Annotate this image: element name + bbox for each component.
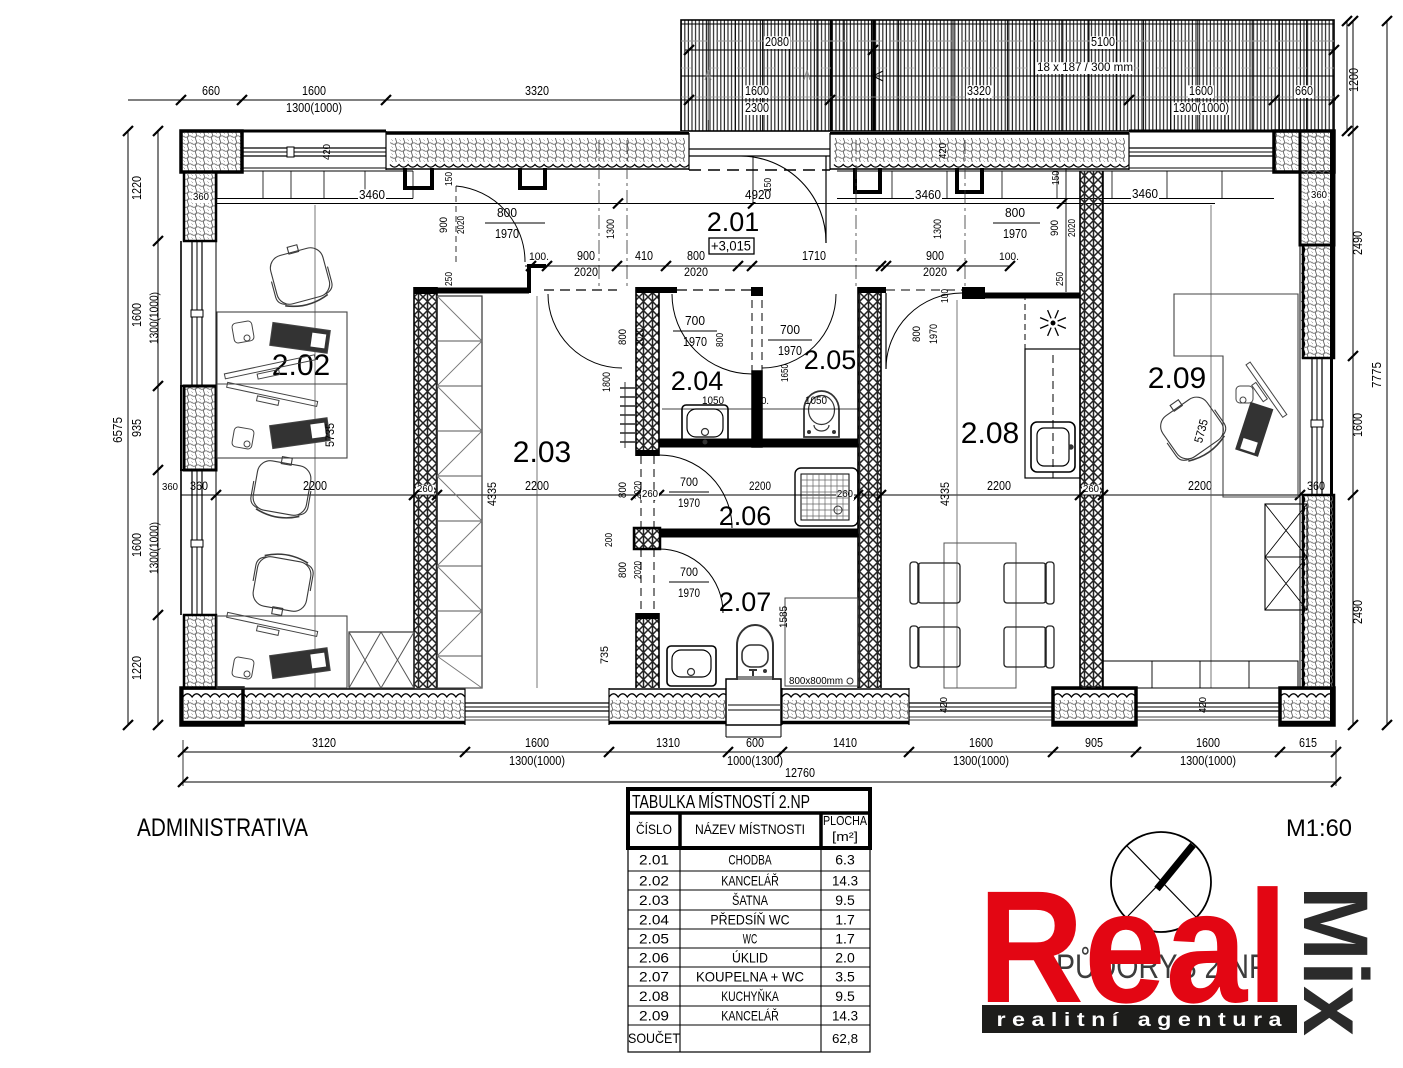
svg-text:WC: WC [743,931,757,947]
svg-text:2.05: 2.05 [804,345,857,375]
svg-text:2.06: 2.06 [639,950,669,966]
svg-text:1600: 1600 [525,735,549,750]
svg-text:NÁZEV MÍSTNOSTI: NÁZEV MÍSTNOSTI [695,821,805,837]
svg-text:150: 150 [1051,171,1062,185]
svg-text:2.02: 2.02 [639,873,669,889]
svg-text:1600: 1600 [302,83,326,98]
svg-text:5100: 5100 [1091,34,1115,49]
svg-text:2.09: 2.09 [1148,362,1206,395]
svg-text:14.3: 14.3 [832,873,858,889]
svg-text:1800: 1800 [601,372,613,392]
svg-text:1600: 1600 [129,533,144,557]
svg-text:1050: 1050 [805,395,827,407]
svg-text:1310: 1310 [656,735,680,750]
svg-text:3460: 3460 [915,187,941,202]
svg-text:1300(1000): 1300(1000) [147,522,161,574]
svg-text:360: 360 [162,482,178,493]
svg-text:700: 700 [680,565,698,579]
svg-text:2.07: 2.07 [639,969,669,985]
svg-text:700: 700 [680,475,698,489]
svg-text:900: 900 [438,217,450,233]
svg-text:2020: 2020 [1067,219,1078,237]
svg-text:PLOCHA: PLOCHA [823,813,867,828]
svg-text:1300(1000): 1300(1000) [953,753,1009,768]
svg-text:[m²]: [m²] [832,829,858,844]
svg-text:800: 800 [911,326,923,342]
svg-text:800: 800 [617,482,629,498]
svg-text:18 x 187 / 300 mm: 18 x 187 / 300 mm [1037,60,1133,74]
svg-text:660: 660 [202,83,220,98]
svg-text:1650: 1650 [780,364,791,382]
svg-text:1970: 1970 [495,226,519,241]
svg-text:1970: 1970 [928,324,940,344]
svg-text:260: 260 [417,484,433,495]
svg-text:150: 150 [763,178,774,192]
svg-text:1600: 1600 [969,735,993,750]
svg-text:KOUPELNA + WC: KOUPELNA + WC [696,969,804,985]
svg-text:1300(1000): 1300(1000) [147,292,161,344]
svg-text:2200: 2200 [749,479,771,493]
svg-text:CHODBA: CHODBA [728,852,772,868]
svg-text:+3,015: +3,015 [711,238,751,254]
svg-text:4335: 4335 [938,482,952,506]
svg-text:1050: 1050 [702,395,724,407]
svg-text:2300: 2300 [745,100,769,115]
svg-text:1300(1000): 1300(1000) [1173,100,1229,115]
svg-text:800: 800 [687,248,705,263]
svg-text:2080: 2080 [765,34,789,49]
svg-text:1.7: 1.7 [835,912,855,928]
svg-text:905: 905 [1085,735,1103,750]
svg-text:1970: 1970 [683,334,707,349]
svg-text:800: 800 [1005,205,1025,220]
svg-text:7775: 7775 [1369,362,1384,388]
svg-text:2.01: 2.01 [707,207,760,237]
svg-text:9.5: 9.5 [835,892,855,908]
svg-text:2490: 2490 [1350,231,1365,255]
svg-text:2.0: 2.0 [835,950,855,966]
svg-text:360: 360 [1307,479,1325,493]
svg-text:250: 250 [1055,272,1066,286]
svg-text:800: 800 [715,333,726,347]
svg-text:360: 360 [190,479,208,493]
svg-text:ÚKLID: ÚKLID [732,950,768,966]
svg-text:3460: 3460 [1132,186,1158,201]
svg-text:900: 900 [577,248,595,263]
svg-text:1970: 1970 [678,586,700,600]
svg-text:PŘEDSÍŇ WC: PŘEDSÍŇ WC [710,912,789,928]
svg-text:410: 410 [635,248,653,263]
svg-text:260: 260 [642,489,658,500]
svg-text:1600: 1600 [129,303,144,327]
svg-text:900: 900 [926,248,944,263]
svg-text:700: 700 [780,322,800,337]
svg-text:1585: 1585 [778,606,790,628]
svg-text:935: 935 [129,419,144,437]
svg-text:1970: 1970 [778,343,802,358]
svg-text:1600: 1600 [1350,413,1365,437]
svg-text:1970: 1970 [1003,226,1027,241]
svg-text:6.3: 6.3 [835,852,855,868]
svg-text:ŠATNA: ŠATNA [732,892,769,908]
svg-text:1600: 1600 [1189,83,1213,98]
svg-text:1600: 1600 [1196,735,1220,750]
svg-text:14.3: 14.3 [832,1008,858,1024]
svg-text:2020: 2020 [923,265,947,279]
svg-text:1300(1000): 1300(1000) [286,100,342,115]
svg-text:2.03: 2.03 [639,892,669,908]
svg-text:1000(1300): 1000(1300) [727,753,783,768]
svg-text:260: 260 [1083,484,1099,495]
svg-text:3120: 3120 [312,735,336,750]
svg-text:KANCELÁŘ: KANCELÁŘ [721,873,779,889]
svg-text:3.5: 3.5 [835,969,855,985]
svg-text:ADMINISTRATIVA: ADMINISTRATIVA [137,814,308,842]
svg-text:2.09: 2.09 [639,1008,669,1024]
svg-text:420: 420 [1198,697,1209,713]
svg-text:200: 200 [604,533,615,547]
svg-text:100.: 100. [999,251,1019,263]
svg-text:2.04: 2.04 [671,366,724,396]
svg-text:735: 735 [599,646,611,664]
svg-text:700: 700 [685,313,705,328]
svg-text:1220: 1220 [129,176,144,200]
svg-text:2490: 2490 [1350,600,1365,624]
svg-text:5735: 5735 [323,423,337,447]
svg-text:360: 360 [1311,190,1327,201]
svg-text:1300: 1300 [932,219,944,239]
svg-text:1410: 1410 [833,735,857,750]
svg-text:2020: 2020 [456,216,467,234]
svg-text:2200: 2200 [1188,478,1212,493]
svg-text:2.06: 2.06 [719,501,772,531]
svg-text:4335: 4335 [485,482,499,506]
svg-text:100.: 100. [751,396,769,407]
svg-text:2.08: 2.08 [961,417,1019,450]
svg-text:2.07: 2.07 [719,587,772,617]
svg-text:2.01: 2.01 [639,852,669,868]
svg-text:800: 800 [617,562,629,578]
svg-text:2020: 2020 [633,561,644,579]
svg-text:420: 420 [938,143,949,159]
svg-text:250: 250 [444,272,455,286]
svg-text:3460: 3460 [359,187,385,202]
svg-text:2020: 2020 [633,481,644,499]
svg-text:KUCHYŇKA: KUCHYŇKA [721,988,779,1004]
svg-text:Mix: Mix [1284,886,1386,1036]
svg-text:150: 150 [444,172,455,186]
svg-text:1970: 1970 [678,496,700,510]
svg-text:100: 100 [940,289,951,303]
svg-text:100.: 100. [529,251,549,263]
svg-text:9.5: 9.5 [835,988,855,1004]
svg-text:TABULKA MÍSTNOSTÍ 2.NP: TABULKA MÍSTNOSTÍ 2.NP [632,792,810,812]
svg-text:2200: 2200 [987,478,1011,493]
svg-text:2020: 2020 [684,265,708,279]
svg-text:2.08: 2.08 [639,988,669,1004]
svg-text:1220: 1220 [129,656,144,680]
svg-text:r e a l i t n í a g e n t u: r e a l i t n í a g e n t u r a [997,1010,1283,1031]
svg-text:420: 420 [939,697,950,713]
svg-text:62,8: 62,8 [832,1031,858,1046]
svg-text:2.05: 2.05 [639,931,669,947]
svg-text:3320: 3320 [967,83,991,98]
svg-text:ČÍSLO: ČÍSLO [636,821,672,837]
svg-text:1.7: 1.7 [835,931,855,947]
svg-text:1300(1000): 1300(1000) [509,753,565,768]
svg-text:800x800mm: 800x800mm [789,675,843,687]
svg-text:12760: 12760 [785,765,815,780]
svg-text:2.04: 2.04 [639,912,669,928]
svg-text:420: 420 [322,144,333,160]
svg-text:900: 900 [1049,220,1061,236]
svg-text:2.02: 2.02 [272,349,330,382]
svg-text:1600: 1600 [745,83,769,98]
svg-text:1300: 1300 [605,219,617,239]
svg-text:800: 800 [617,329,629,345]
svg-text:360: 360 [193,192,209,203]
svg-text:M1:60: M1:60 [1286,815,1352,842]
svg-text:2020: 2020 [574,265,598,279]
svg-text:2020: 2020 [635,328,646,346]
svg-text:SOUČET: SOUČET [628,1030,680,1046]
svg-text:1710: 1710 [802,248,826,263]
svg-text:660: 660 [1295,83,1313,98]
svg-text:1300(1000): 1300(1000) [1180,753,1236,768]
svg-text:615: 615 [1299,735,1317,750]
svg-text:6575: 6575 [110,417,125,443]
svg-text:2.03: 2.03 [513,436,571,469]
svg-text:3320: 3320 [525,83,549,98]
svg-text:KANCELÁŘ: KANCELÁŘ [721,1008,779,1024]
